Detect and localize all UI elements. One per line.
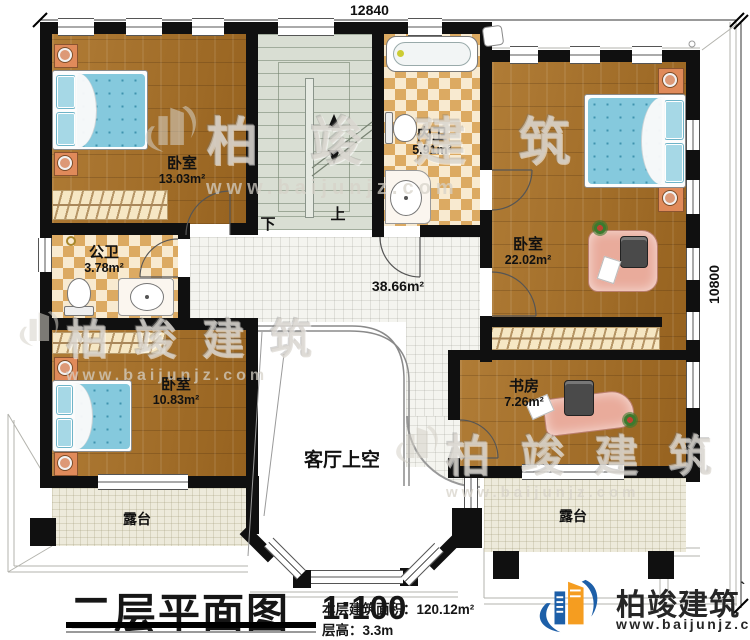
title-underline-thick: [66, 622, 316, 628]
plant: [592, 220, 608, 236]
company-logo-icon: [528, 574, 612, 636]
window: [570, 46, 600, 64]
wall: [246, 22, 258, 235]
nightstand: [54, 452, 78, 476]
stair-rail: [305, 78, 314, 218]
window: [510, 46, 538, 64]
wall: [372, 22, 384, 237]
window: [686, 180, 700, 214]
living-void-area: [258, 322, 406, 467]
room-area: 3.78m²: [62, 261, 146, 275]
room-label-bedroom-right: 卧室 22.02m²: [486, 236, 570, 268]
room-label-bedroom-top-left: 卧室 13.03m²: [140, 155, 224, 187]
stair-direction: 上: [326, 206, 350, 223]
room-name: 卧室: [140, 155, 224, 172]
room-area: 5.91m²: [390, 143, 474, 157]
stairs-up-label: 上: [326, 206, 350, 223]
room-label-bedroom-bottom-left: 卧室 10.83m²: [134, 376, 218, 408]
closet: [52, 190, 168, 220]
bed: [584, 94, 686, 188]
terrace-column: [493, 551, 519, 579]
window: [38, 238, 52, 272]
room-name: 卧室: [486, 236, 570, 253]
company-name-mark: `: [740, 580, 746, 597]
wall: [448, 350, 460, 420]
closet: [52, 332, 166, 354]
floor-area-note: 本层建筑面积：120.12m²: [322, 598, 474, 618]
window: [686, 362, 700, 408]
window: [632, 46, 662, 64]
wall: [624, 466, 686, 478]
wall: [480, 317, 662, 327]
window: [126, 18, 162, 36]
terrace-column: [648, 551, 674, 579]
room-area: 7.26m²: [482, 395, 566, 409]
wall: [420, 225, 480, 237]
wall: [460, 350, 686, 360]
bed: [52, 380, 132, 452]
terrace-left-label: 露台: [104, 511, 170, 527]
room-label-public-bath: 公卫 3.78m²: [62, 244, 146, 276]
stairs-down-label: 下: [256, 216, 280, 233]
nightstand: [54, 357, 78, 381]
terrace-column: [30, 518, 56, 546]
terrace-right-label: 露台: [540, 508, 606, 524]
plant: [622, 412, 638, 428]
hall-area-label: 38.66m²: [356, 278, 440, 294]
window: [686, 312, 700, 340]
closet: [482, 327, 660, 350]
dimension-width: 12840: [350, 2, 389, 18]
nightstand: [54, 44, 78, 68]
window: [98, 474, 188, 490]
room-name: 露台: [540, 508, 606, 524]
computer: [620, 236, 648, 268]
title-underline-thin: [66, 631, 316, 633]
wall: [40, 476, 98, 488]
stair-inner-outline: [278, 62, 350, 212]
floor-plan: 卧室 13.03m² 内卫 5.91m² 卧室 22.02m² 公卫 3.78m…: [0, 0, 750, 640]
window: [686, 248, 700, 280]
wall: [40, 318, 258, 330]
room-name: 露台: [104, 511, 170, 527]
room-area: 22.02m²: [486, 253, 570, 267]
bed: [52, 70, 148, 150]
sink: [390, 180, 422, 216]
wall: [246, 318, 258, 488]
computer: [564, 380, 594, 416]
wall: [372, 225, 380, 237]
room-area: 13.03m²: [140, 172, 224, 186]
bathtub: [386, 36, 478, 72]
wall: [178, 223, 190, 239]
window: [522, 464, 624, 480]
wall: [448, 466, 522, 478]
nightstand: [54, 152, 78, 176]
wall: [230, 223, 258, 235]
room-name: 客厅上空: [266, 450, 418, 472]
window: [58, 18, 94, 36]
toilet-bowl: [67, 278, 91, 308]
dimension-height: 10800: [706, 265, 722, 304]
sink: [130, 283, 164, 311]
room-area: 10.83m²: [134, 393, 218, 407]
room-name: 内卫: [390, 126, 474, 143]
window: [408, 18, 442, 36]
window: [192, 18, 224, 36]
nightstand: [658, 68, 684, 94]
bay-window: [311, 570, 403, 584]
nightstand: [658, 186, 684, 212]
room-name: 书房: [482, 378, 566, 395]
room-name: 卧室: [134, 376, 218, 393]
company-website: www.baijunjz.com: [616, 616, 750, 632]
window: [686, 120, 700, 150]
flue-box: [482, 25, 505, 48]
wall: [40, 223, 186, 235]
living-void-label: 客厅上空: [266, 450, 418, 472]
stair-direction: 下: [256, 216, 280, 233]
room-area: 38.66m²: [356, 278, 440, 294]
window: [278, 18, 334, 36]
room-label-study: 书房 7.26m²: [482, 378, 566, 410]
room-label-inner-bath: 内卫 5.91m²: [390, 126, 474, 158]
window: [464, 478, 478, 508]
room-name: 公卫: [62, 244, 146, 261]
floor-height-note: 层高：3.3m: [322, 619, 393, 639]
